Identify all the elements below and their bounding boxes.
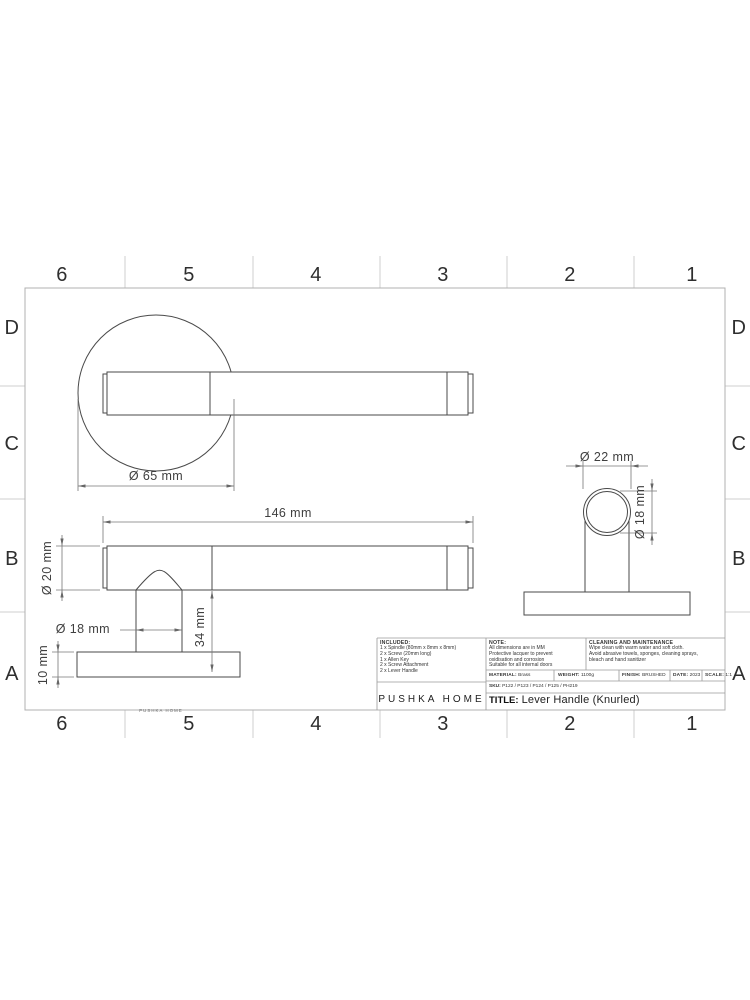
spec-value: Brass — [518, 673, 530, 678]
spec-label: WEIGHT: — [558, 673, 580, 678]
sku-value: P122 / P123 / P124 / P125 / PH219 — [502, 684, 577, 689]
dim-label: Ø 65 mm — [129, 469, 183, 483]
rose-plate-side — [524, 592, 690, 615]
grid-col-label: 2 — [564, 713, 576, 735]
dim-label: 34 mm — [193, 607, 207, 647]
grid-row-label: B — [5, 548, 19, 570]
grid-letters-left: D C B A — [5, 317, 20, 685]
spec-weight: WEIGHT: 1100g — [558, 673, 594, 678]
spec-value: 1100g — [581, 673, 594, 678]
lever-end-cap-left — [103, 374, 107, 413]
lever-end-cap-right — [468, 374, 473, 413]
grid-row-label: C — [732, 433, 747, 455]
dim-bar-diameter: Ø 20 mm — [40, 535, 100, 601]
dim-label: Ø 18 mm — [56, 622, 110, 636]
drawing-title: Lever Handle (Knurled) — [522, 694, 640, 706]
brand-watermark: PUSHKA HOME — [131, 708, 191, 713]
spec-value: BRUSHED — [642, 673, 665, 678]
lever-bar — [107, 372, 468, 415]
grid-row-label: B — [732, 548, 746, 570]
spec-material: MATERIAL: Brass — [489, 673, 530, 678]
grid-row-label: D — [732, 317, 747, 339]
grid-col-label: 6 — [56, 264, 68, 286]
note-cell: NOTE: All dimensions are in MM Protectiv… — [489, 640, 583, 669]
lever-end-cap-right-front — [468, 548, 473, 588]
drawing-canvas: 6 5 4 3 2 1 6 5 4 3 2 1 D C B A D C B A — [0, 0, 750, 1000]
grid-col-label: 4 — [310, 713, 322, 735]
included-item: 2 x Lever Handle — [380, 669, 483, 675]
dim-end-outer-diameter: Ø 22 mm — [566, 450, 648, 489]
title-label: TITLE: — [489, 695, 519, 706]
dim-label: 10 mm — [36, 645, 50, 685]
dim-label: Ø 18 mm — [633, 485, 647, 539]
lever-outer-circle — [584, 489, 631, 536]
dim-lever-length: 146 mm — [103, 506, 473, 543]
dim-rose-thickness: 10 mm — [36, 641, 74, 688]
cleaning-cell: CLEANING AND MAINTENANCE Wipe clean with… — [589, 640, 723, 663]
grid-col-label: 1 — [686, 713, 698, 735]
cleaning-line: bleach and hand sanitizer — [589, 658, 723, 664]
dim-label: Ø 20 mm — [40, 541, 54, 595]
grid-numbers-bottom: 6 5 4 3 2 1 — [56, 713, 698, 735]
lever-end-cap-left-front — [103, 548, 107, 588]
sku-label: SKU: — [489, 684, 501, 689]
note-line: Suitable for all internal doors — [489, 663, 583, 669]
side-view: Ø 22 mm Ø 18 mm — [524, 450, 690, 615]
spec-value: 1:1 — [725, 673, 732, 678]
grid-col-label: 5 — [183, 713, 195, 735]
rose-plate-front — [77, 652, 240, 677]
grid-col-label: 6 — [56, 713, 68, 735]
grid-col-label: 3 — [437, 264, 449, 286]
spec-date: DATE: 2023 — [673, 673, 700, 678]
spec-label: MATERIAL: — [489, 673, 517, 678]
spec-finish: FINISH: BRUSHED — [622, 673, 666, 678]
grid-col-label: 1 — [686, 264, 698, 286]
technical-drawing-page: 6 5 4 3 2 1 6 5 4 3 2 1 D C B A D C B A — [0, 0, 750, 1000]
spec-value: 2023 — [690, 673, 701, 678]
lever-bar-front — [107, 546, 468, 590]
grid-letters-right: D C B A — [732, 317, 747, 685]
grid-col-label: 4 — [310, 264, 322, 286]
grid-col-label: 3 — [437, 713, 449, 735]
included-cell: INCLUDED: 1 x Spindle (80mm x 8mm x 8mm)… — [380, 640, 483, 675]
spec-scale: SCALE: 1:1 — [705, 673, 732, 678]
dim-label: 146 mm — [264, 506, 312, 520]
grid-row-label: A — [732, 663, 746, 685]
title-row: TITLE: Lever Handle (Knurled) — [489, 694, 640, 706]
top-view: Ø 65 mm — [78, 315, 473, 491]
brand-logo: PUSHKA HOME — [377, 694, 486, 705]
sku-row: SKU: P122 / P123 / P124 / P125 / PH219 — [489, 684, 578, 689]
spec-label: DATE: — [673, 673, 688, 678]
grid-col-label: 5 — [183, 264, 195, 286]
spec-label: FINISH: — [622, 673, 641, 678]
dim-stem-diameter: Ø 18 mm — [56, 622, 182, 636]
grid-row-label: D — [5, 317, 20, 339]
dim-label: Ø 22 mm — [580, 450, 634, 464]
grid-col-label: 2 — [564, 264, 576, 286]
grid-row-label: C — [5, 433, 20, 455]
grid-numbers-top: 6 5 4 3 2 1 — [56, 264, 698, 286]
spec-label: SCALE: — [705, 673, 724, 678]
grid-row-label: A — [5, 663, 19, 685]
